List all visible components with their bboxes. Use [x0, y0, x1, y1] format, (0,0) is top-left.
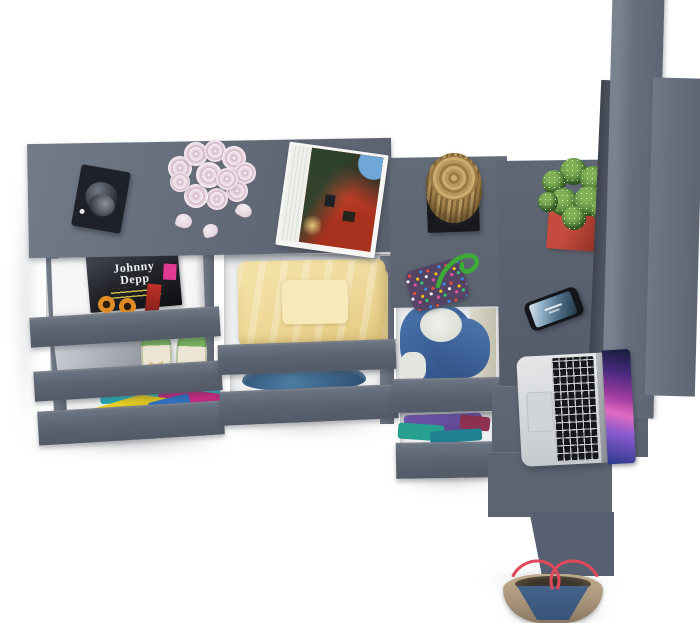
laptop-screen-wallpaper: [602, 349, 636, 464]
open-architecture-magazine: [275, 142, 389, 259]
building-window: [342, 211, 355, 223]
hoodie-fleece-lining: [420, 308, 462, 342]
cactus-pad: [538, 192, 558, 212]
magazine-photo-red-building: [299, 148, 384, 252]
furniture-render-scene: Top-down 3D render of an anthracite grey…: [0, 0, 700, 623]
wardrobe-side-panel: [645, 77, 700, 396]
tote-bag: [503, 566, 603, 623]
rose: [206, 188, 228, 210]
green-cord: [432, 244, 484, 290]
laptop-trackpad: [526, 391, 554, 432]
laptop-keyboard: [551, 356, 598, 462]
wooden-stump: [426, 153, 482, 223]
yellow-blanket: [237, 259, 386, 348]
building-window: [324, 194, 336, 207]
laptop: [516, 349, 636, 469]
drawer-front: [396, 441, 503, 479]
rose: [170, 172, 190, 192]
magazine-pink-sticker: [163, 264, 177, 281]
tray-detail: [79, 209, 85, 215]
magazine-title: Johnny Depp: [104, 258, 164, 287]
rose: [216, 168, 238, 190]
drawer-front: [218, 339, 397, 375]
valet-tray: [71, 164, 131, 234]
second-magazine-graphic: [98, 296, 115, 313]
blanket-fold: [282, 279, 349, 324]
scene-description: Top-down 3D render of an anthracite grey…: [0, 0, 1, 1]
drawer-front: [393, 377, 504, 413]
building-light: [302, 213, 323, 237]
stump-top-rings: [430, 156, 478, 200]
cactus-pad: [562, 206, 586, 230]
